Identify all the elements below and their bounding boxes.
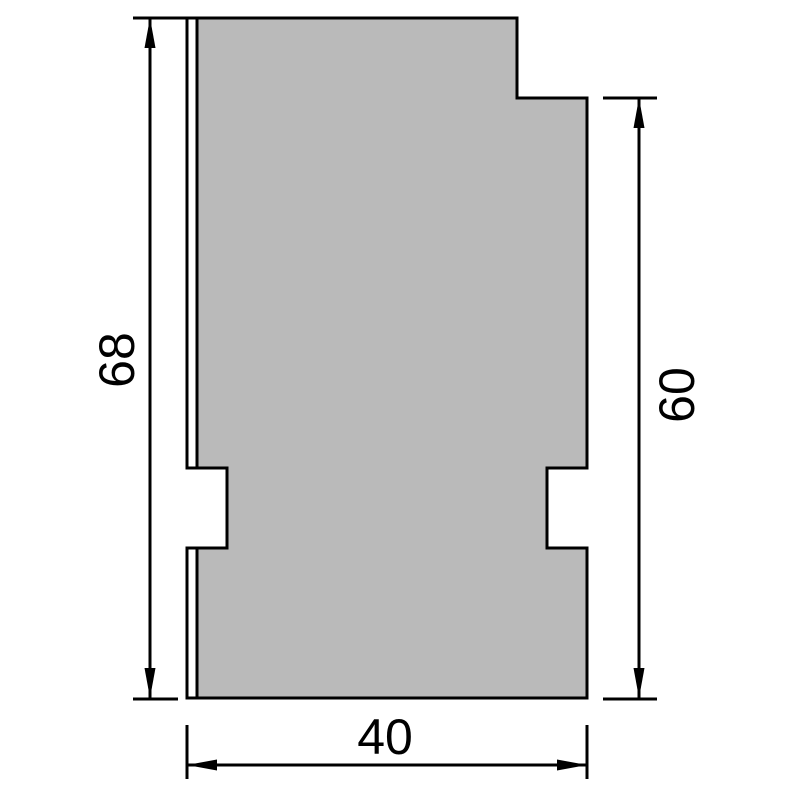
dimension-right-60: 60 <box>603 98 705 699</box>
dim-60-arrow-up-icon <box>634 98 645 128</box>
dim-40-label: 40 <box>357 709 413 765</box>
profile-technical-drawing: 68 60 40 <box>0 0 800 800</box>
profile-body-section <box>197 18 587 698</box>
dim-68-arrow-down-icon <box>145 668 156 698</box>
dim-68-label: 68 <box>89 332 145 388</box>
dim-60-arrow-down-icon <box>634 668 645 698</box>
dim-60-label: 60 <box>649 367 705 423</box>
dim-40-arrow-left-icon <box>187 760 217 771</box>
dimension-bottom-40: 40 <box>187 709 587 779</box>
dim-68-arrow-up-icon <box>145 18 156 48</box>
dim-40-arrow-right-icon <box>557 760 587 771</box>
drawing-canvas: 68 60 40 <box>0 0 800 800</box>
dimension-left-68: 68 <box>89 18 190 699</box>
